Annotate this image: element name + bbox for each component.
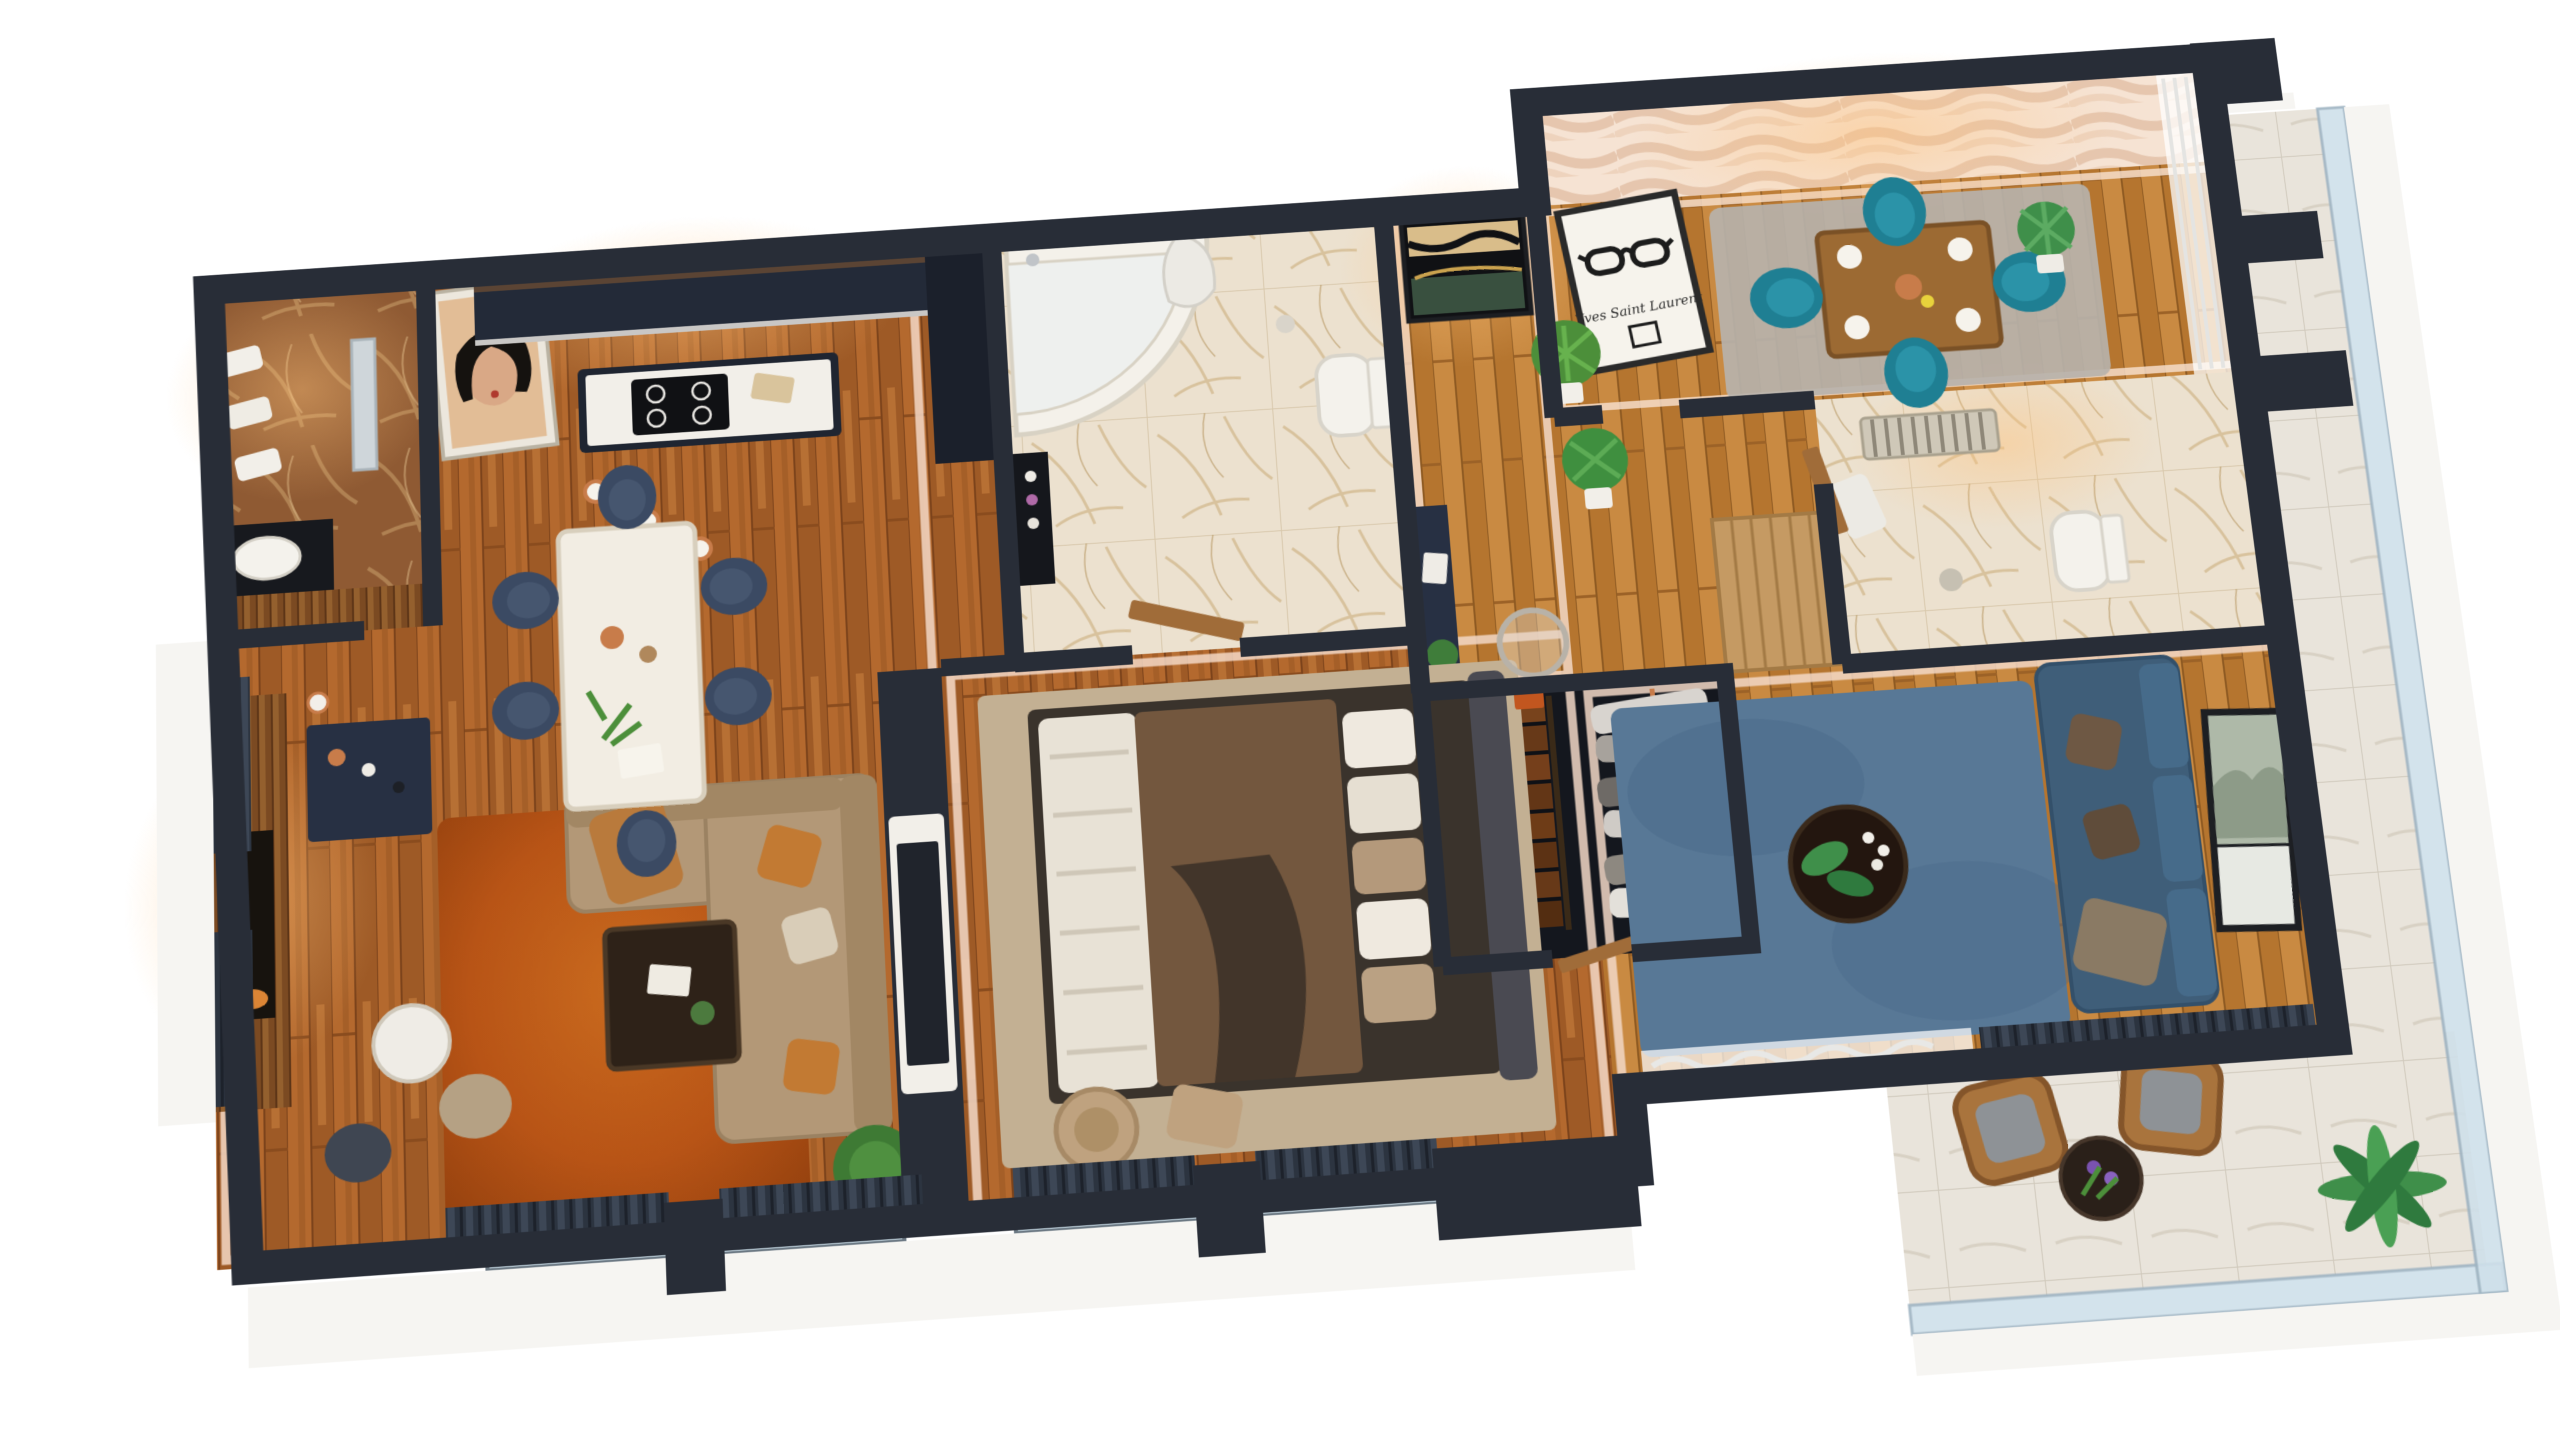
entry-art	[1401, 214, 1532, 321]
induction-hob	[631, 373, 730, 435]
bed-pillow-white	[1346, 773, 1421, 834]
office-window-pier	[2231, 350, 2354, 413]
wall-pier	[664, 1199, 726, 1295]
bed-pillow-white	[1356, 898, 1432, 960]
floor-lamp	[308, 692, 328, 713]
brown-pillow	[2064, 712, 2123, 772]
guest-room	[1609, 649, 2328, 1083]
bed-pillow-taupe	[1351, 837, 1426, 895]
floor-plan-render: Yves Saint Laurent	[0, 0, 2560, 1440]
bed-pillow-white	[1342, 708, 1417, 769]
media-console	[307, 717, 433, 842]
open-book	[647, 964, 692, 997]
apartment-plan: Yves Saint Laurent	[7, 0, 2560, 1440]
wall-mirror	[351, 339, 377, 471]
wall-pier	[1432, 1135, 1642, 1241]
double-bed	[1027, 670, 1539, 1113]
left-outer-wall-face	[156, 641, 216, 1127]
wall-pier	[1193, 1161, 1266, 1258]
guest-room-top-wall	[1578, 672, 1725, 682]
cutting-board	[750, 372, 795, 403]
office-window-pier	[2213, 211, 2324, 265]
round-vanity-mirror	[1497, 608, 1569, 678]
shopping-bag	[1422, 552, 1448, 584]
bed-pillow-taupe	[1361, 963, 1437, 1024]
orange-pillow-2	[782, 1038, 841, 1096]
office-window-pier	[2190, 38, 2283, 106]
